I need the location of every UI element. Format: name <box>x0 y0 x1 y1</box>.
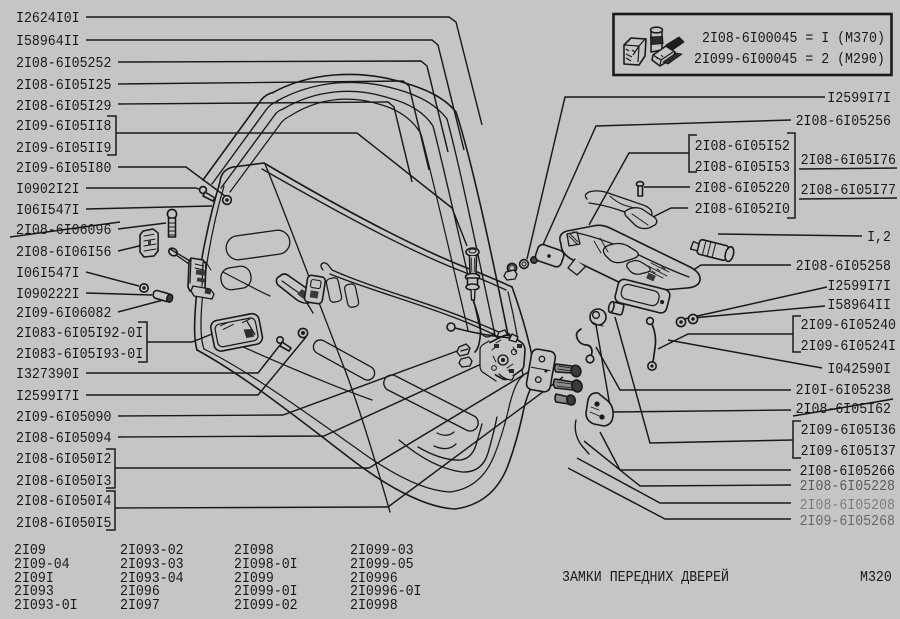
svg-text:2I08-6I05I53: 2I08-6I05I53 <box>695 160 790 176</box>
svg-text:I042590I: I042590I <box>827 362 891 378</box>
svg-text:3АМКИ ПЕРЕДНИХ ДВЕРЕЙ: 3АМКИ ПЕРЕДНИХ ДВЕРЕЙ <box>562 569 729 586</box>
svg-text:2I083-6I05I92-0I: 2I083-6I05I92-0I <box>16 326 143 342</box>
svg-text:2I08-6I05I29: 2I08-6I05I29 <box>16 99 111 115</box>
svg-text:2I08-6I06I56: 2I08-6I06I56 <box>16 245 111 261</box>
svg-text:2I08-6I05I25: 2I08-6I05I25 <box>16 78 111 94</box>
svg-text:2I08-6I05266: 2I08-6I05266 <box>800 464 895 480</box>
svg-text:2I08-6I05220: 2I08-6I05220 <box>695 181 790 197</box>
svg-text:2I09-6I06082: 2I09-6I06082 <box>16 306 111 322</box>
svg-text:2I09-6I05I37: 2I09-6I05I37 <box>801 444 896 460</box>
svg-text:2I09-6I0524I: 2I09-6I0524I <box>801 339 896 355</box>
svg-text:2I08-6I05I76: 2I08-6I05I76 <box>801 153 896 169</box>
svg-text:2I099-6I00045 = 2 (M290): 2I099-6I00045 = 2 (M290) <box>694 52 885 68</box>
svg-text:2I08-6I052I0: 2I08-6I052I0 <box>695 202 790 218</box>
svg-text:I090222I: I090222I <box>16 287 80 303</box>
svg-text:I0902I2I: I0902I2I <box>16 182 80 198</box>
svg-text:2I09-6I05090: 2I09-6I05090 <box>16 410 111 426</box>
svg-text:I,2: I,2 <box>867 230 891 246</box>
svg-text:2I08-6I050I2: 2I08-6I050I2 <box>16 452 111 468</box>
svg-text:I06I547I: I06I547I <box>16 203 80 219</box>
svg-text:I2624I0I: I2624I0I <box>16 11 80 27</box>
svg-text:I58964II: I58964II <box>16 34 80 50</box>
svg-text:2I0I-6I05238: 2I0I-6I05238 <box>796 383 891 399</box>
svg-text:I2599I7I: I2599I7I <box>827 91 891 107</box>
svg-text:2I09-6I05II8: 2I09-6I05II8 <box>16 119 111 135</box>
svg-text:2I08-6I05208: 2I08-6I05208 <box>800 498 895 514</box>
svg-text:2I083-6I05I93-0I: 2I083-6I05I93-0I <box>16 347 143 363</box>
svg-text:2I09-6I05II9: 2I09-6I05II9 <box>16 141 111 157</box>
svg-text:2I093-0I: 2I093-0I <box>14 598 78 614</box>
svg-text:2I099-02: 2I099-02 <box>234 598 298 614</box>
svg-text:2I0998: 2I0998 <box>350 598 398 614</box>
svg-text:2I08-6I050I5: 2I08-6I050I5 <box>16 516 111 532</box>
svg-text:I2599I7I: I2599I7I <box>827 279 891 295</box>
svg-text:2I09-6I05I36: 2I09-6I05I36 <box>801 423 896 439</box>
svg-text:2I08-6I05252: 2I08-6I05252 <box>16 56 111 72</box>
svg-text:2I08-6I05094: 2I08-6I05094 <box>16 431 112 447</box>
svg-text:2I08-6I05258: 2I08-6I05258 <box>796 259 891 275</box>
svg-text:2I08-6I00045 = I (M370): 2I08-6I00045 = I (M370) <box>702 31 885 47</box>
svg-text:2I09-6I05I80: 2I09-6I05I80 <box>16 161 111 177</box>
svg-text:2I08-6I050I3: 2I08-6I050I3 <box>16 474 111 490</box>
svg-text:2I08-6I05I62: 2I08-6I05I62 <box>796 402 891 418</box>
svg-text:I2599I7I: I2599I7I <box>16 389 80 405</box>
svg-text:I06I547I: I06I547I <box>16 266 80 282</box>
svg-text:2I08-6I050I4: 2I08-6I050I4 <box>16 494 112 510</box>
svg-text:M320: M320 <box>860 570 892 586</box>
svg-text:2I08-6I05228: 2I08-6I05228 <box>800 479 895 495</box>
svg-text:2I08-6I05256: 2I08-6I05256 <box>796 114 891 130</box>
svg-text:2I09-6I05268: 2I09-6I05268 <box>800 514 895 530</box>
svg-text:2I09-6I05240: 2I09-6I05240 <box>801 318 896 334</box>
svg-text:I58964II: I58964II <box>827 298 891 314</box>
svg-text:I327390I: I327390I <box>16 367 80 383</box>
svg-text:2I08-6I05I52: 2I08-6I05I52 <box>695 139 790 155</box>
svg-text:2I097: 2I097 <box>120 598 160 614</box>
svg-text:2I08-6I05I77: 2I08-6I05I77 <box>801 183 896 199</box>
